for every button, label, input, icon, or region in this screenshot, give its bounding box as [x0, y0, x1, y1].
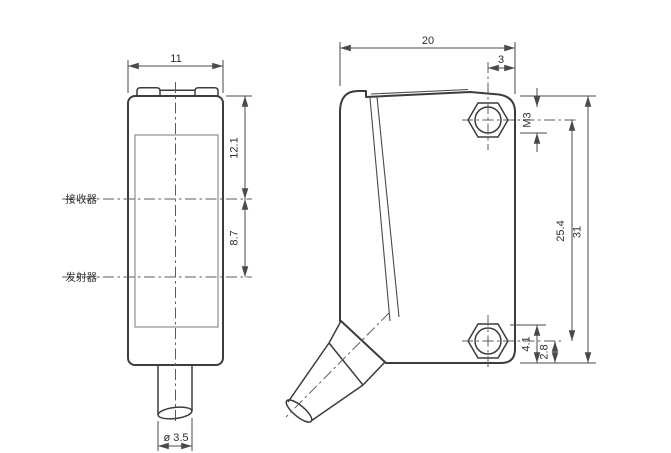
dim-depth-label: 20	[422, 35, 434, 47]
side-cable	[283, 313, 389, 425]
front-tab-right	[195, 88, 218, 96]
side-bevel-edge	[341, 321, 386, 363]
sensor-dimension-drawing: 接收器 发射器 11 12.1 8.7	[0, 0, 671, 453]
dim-hole-edge-offset-label: 3	[498, 54, 504, 66]
side-body-outline	[340, 91, 515, 363]
side-view: 20 3 M3 25.4 31 4.1	[283, 35, 596, 425]
dim-hole-spacing: 25.4	[555, 120, 572, 341]
dim-hole-edge-offset: 3	[488, 54, 515, 68]
dim-receiver-offset: 12.1	[226, 96, 252, 199]
side-cable-upper-edge	[288, 343, 329, 402]
front-lens-window	[135, 135, 218, 327]
front-tab-left	[137, 88, 160, 96]
dim-emitter-spacing: 8.7	[229, 199, 246, 277]
dim-hole-spacing-label: 25.4	[555, 220, 567, 241]
dim-receiver-offset-label: 12.1	[229, 137, 241, 158]
dim-bottom-hole-top-label: 4.1	[521, 336, 533, 351]
technical-drawing-canvas: 接收器 发射器 11 12.1 8.7	[0, 0, 671, 453]
dim-bottom-hole-center: 2.8	[539, 341, 556, 363]
cable-boot-lower-edge	[363, 362, 385, 385]
side-cable-lower-edge	[311, 385, 363, 421]
dim-bottom-hole-center-label: 2.8	[539, 344, 551, 359]
front-top-tabs	[137, 88, 218, 96]
dim-height-label: 31	[572, 226, 584, 238]
dim-cable-diameter-label: ø 3.5	[163, 432, 188, 444]
front-view: 接收器 发射器 11 12.1 8.7	[62, 53, 252, 451]
cable-boot-junction	[329, 343, 363, 385]
emitter-axis-label: 发射器	[66, 271, 98, 284]
cable-boot-upper-edge	[329, 321, 341, 343]
receiver-axis-label: 接收器	[66, 193, 98, 206]
dim-front-width-label: 11	[170, 53, 181, 65]
dim-depth: 20	[340, 35, 515, 94]
dim-emitter-spacing-label: 8.7	[229, 230, 241, 245]
mounting-hole-top	[462, 62, 578, 150]
dim-thread-label: M3	[522, 112, 534, 127]
dim-cable-diameter: ø 3.5	[158, 418, 192, 451]
